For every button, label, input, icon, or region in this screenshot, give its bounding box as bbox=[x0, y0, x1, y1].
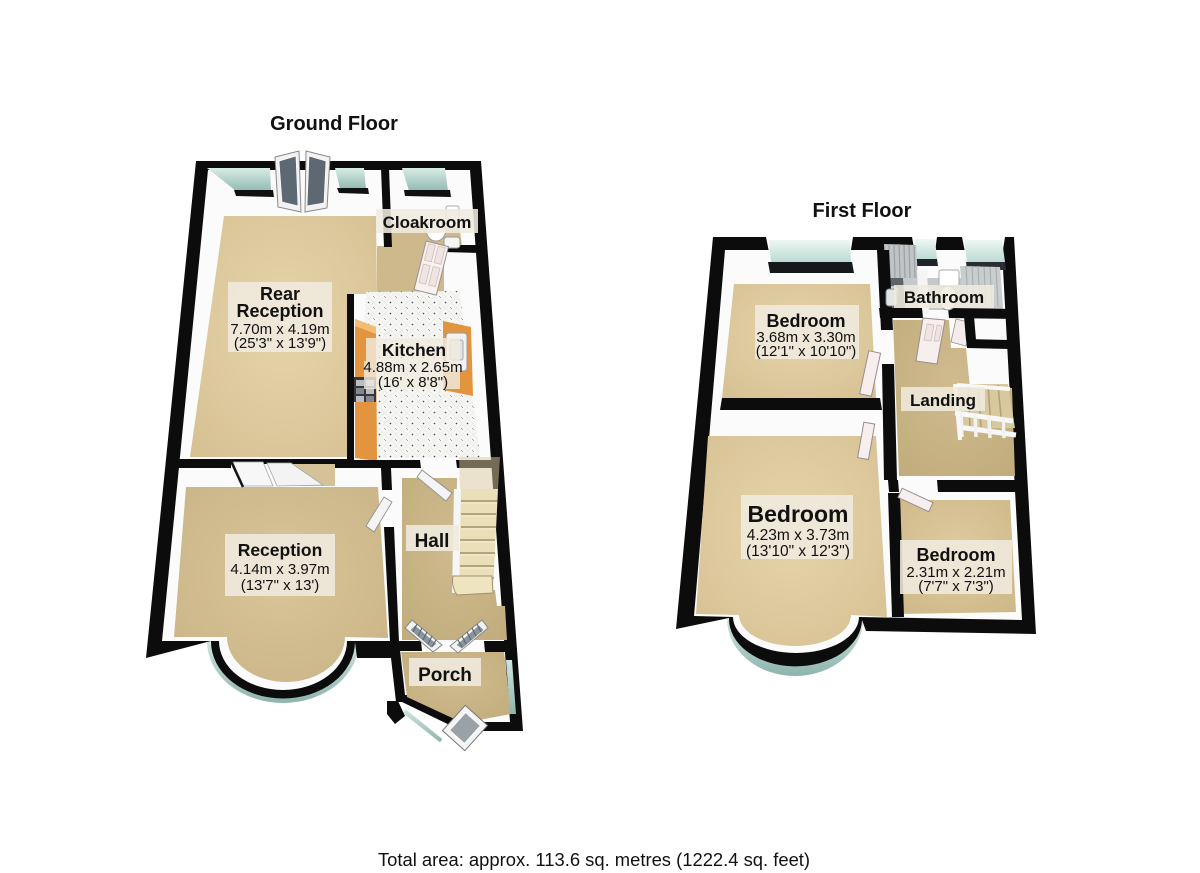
svg-text:Cloakroom: Cloakroom bbox=[383, 213, 472, 232]
svg-text:(13'10" x 12'3"): (13'10" x 12'3") bbox=[746, 543, 850, 560]
svg-text:Hall: Hall bbox=[415, 531, 450, 552]
svg-text:Porch: Porch bbox=[418, 665, 472, 686]
svg-text:Landing: Landing bbox=[910, 391, 976, 410]
svg-text:(7'7" x 7'3"): (7'7" x 7'3") bbox=[918, 578, 994, 595]
svg-text:Bathroom: Bathroom bbox=[904, 288, 984, 307]
svg-text:4.23m x 3.73m: 4.23m x 3.73m bbox=[747, 527, 850, 544]
svg-text:Kitchen: Kitchen bbox=[382, 340, 446, 360]
svg-text:Bedroom: Bedroom bbox=[916, 545, 995, 565]
svg-text:First Floor: First Floor bbox=[813, 200, 912, 222]
svg-text:(16' x 8'8"): (16' x 8'8") bbox=[378, 374, 448, 391]
svg-text:(25'3" x 13'9"): (25'3" x 13'9") bbox=[234, 335, 326, 352]
svg-text:(12'1" x 10'10"): (12'1" x 10'10") bbox=[756, 343, 857, 360]
svg-text:Bedroom: Bedroom bbox=[748, 501, 849, 527]
svg-text:Ground Floor: Ground Floor bbox=[270, 113, 398, 135]
svg-text:Reception: Reception bbox=[236, 301, 323, 321]
svg-text:Reception: Reception bbox=[238, 540, 323, 560]
svg-text:Total area: approx. 113.6 sq.: Total area: approx. 113.6 sq. metres (12… bbox=[378, 849, 810, 870]
svg-text:(13'7" x 13'): (13'7" x 13') bbox=[241, 577, 320, 594]
svg-text:Bedroom: Bedroom bbox=[766, 311, 845, 331]
svg-text:4.14m x 3.97m: 4.14m x 3.97m bbox=[230, 561, 329, 578]
